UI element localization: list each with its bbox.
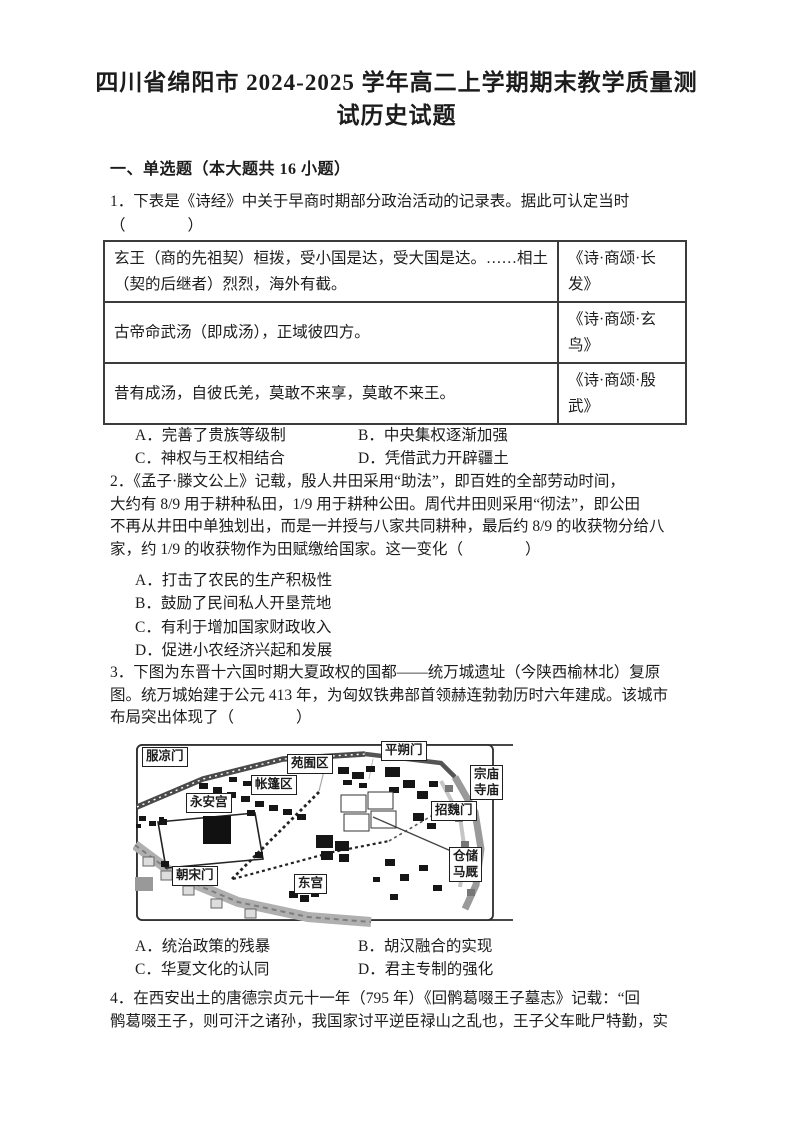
table-cell-source: 《诗·商颂·玄鸟》: [558, 302, 686, 363]
figure-label-tent-area: 帐篷区: [251, 775, 297, 795]
question-1-stem-line: （ ）: [110, 214, 685, 238]
question-2-stem-line: 2．《孟子·滕文公上》记载，殷人井田采用“助法”，即百姓的全部劳动时间，: [110, 471, 685, 494]
figure-label-east-gate: 招魏门: [431, 801, 477, 821]
question-3-stem-line: 布局突出体现了（ ）: [110, 707, 685, 730]
figure-label-storage-line-1: 仓储: [453, 849, 478, 865]
figure-label-temple-line-2: 寺庙: [474, 783, 499, 799]
page-title-line-2: 试历史试题: [0, 99, 793, 132]
figure-label-temple-line-1: 宗庙: [474, 767, 499, 783]
q1-option-d: D．凭借武力开辟疆土: [358, 448, 509, 470]
question-4-stem-line: 鹘葛啜王子，则可汗之诸孙，我国家讨平逆臣禄山之乱也，王子父车毗尸特勤，实: [110, 1011, 685, 1034]
page-title: 四川省绵阳市 2024-2025 学年高二上学期期末教学质量测 试历史试题: [0, 66, 793, 132]
figure-label-temple: 宗庙 寺庙: [470, 765, 503, 800]
q2-option-c: C．有利于增加国家财政收入: [135, 617, 331, 639]
table-cell-source: 《诗·商颂·殷武》: [558, 363, 686, 424]
question-1-stem: 1．下表是《诗经》中关于早商时期部分政治活动的记录表。据此可认定当时 （ ）: [110, 190, 685, 237]
question-2-stem-line: 家，约 1/9 的收获物作为田赋缴给国家。这一变化（ ）: [110, 539, 685, 562]
figure-label-storage: 仓储 马厩: [449, 847, 482, 882]
q3-option-d: D．君主专制的强化: [358, 959, 493, 981]
table-cell-content: 昔有成汤，自彼氏羌，莫敢不来享，莫敢不来王。: [104, 363, 558, 424]
question-3-stem-line: 3．下图为东晋十六国时期大夏政权的国都——统万城遗址（今陕西榆林北）复原: [110, 662, 685, 685]
figure-label-north-gate: 平朔门: [381, 741, 427, 761]
page-title-line-1: 四川省绵阳市 2024-2025 学年高二上学期期末教学质量测: [0, 66, 793, 99]
q1-source-table: 玄王（商的先祖契）桓拨，受小国是达，受大国是达。……相土（契的后继者）烈烈，海外…: [103, 240, 687, 425]
section-heading: 一、单选题（本大题共 16 小题）: [110, 155, 351, 179]
q2-option-a: A．打击了农民的生产积极性: [135, 570, 332, 592]
tongwan-city-figure: 服凉门 苑囿区 平朔门 宗庙 寺庙 帐篷区 永安宫 招魏门 仓储 马厩 朝宋门 …: [133, 737, 513, 927]
figure-label-south-gate: 朝宋门: [172, 866, 218, 886]
q1-option-a: A．完善了贵族等级制: [135, 425, 286, 447]
q3-option-c: C．华夏文化的认同: [135, 959, 269, 981]
question-4-stem: 4．在西安出土的唐德宗贞元十一年（795 年）《回鹘葛啜王子墓志》记载：“回 鹘…: [110, 988, 685, 1033]
q1-option-b: B．中央集权逐渐加强: [358, 425, 508, 447]
table-row: 古帝命武汤（即成汤），正域彼四方。 《诗·商颂·玄鸟》: [104, 302, 686, 363]
question-2-stem-line: 不再从井田中单独划出，而是一并授与八家共同耕种，最后约 8/9 的收获物分给八: [110, 516, 685, 539]
table-cell-content: 玄王（商的先祖契）桓拨，受小国是达，受大国是达。……相土（契的后继者）烈烈，海外…: [104, 241, 558, 302]
question-3-stem-line: 图。统万城始建于公元 413 年，为匈奴铁弗部首领赫连勃勃历时六年建成。该城市: [110, 685, 685, 708]
figure-label-storage-line-2: 马厩: [453, 865, 478, 881]
q1-option-c: C．神权与王权相结合: [135, 448, 285, 470]
table-cell-source: 《诗·商颂·长发》: [558, 241, 686, 302]
question-4-stem-line: 4．在西安出土的唐德宗贞元十一年（795 年）《回鹘葛啜王子墓志》记载：“回: [110, 988, 685, 1011]
question-1-stem-line: 1．下表是《诗经》中关于早商时期部分政治活动的记录表。据此可认定当时: [110, 190, 685, 214]
exam-page: 四川省绵阳市 2024-2025 学年高二上学期期末教学质量测 试历史试题 一、…: [0, 0, 793, 1122]
figure-label-garden-area: 苑囿区: [287, 754, 333, 774]
figure-label-west-gate: 服凉门: [142, 747, 188, 767]
table-row: 玄王（商的先祖契）桓拨，受小国是达，受大国是达。……相土（契的后继者）烈烈，海外…: [104, 241, 686, 302]
question-3-stem: 3．下图为东晋十六国时期大夏政权的国都——统万城遗址（今陕西榆林北）复原 图。统…: [110, 662, 685, 730]
figure-label-east-palace: 东宫: [294, 874, 327, 894]
table-cell-content: 古帝命武汤（即成汤），正域彼四方。: [104, 302, 558, 363]
q2-option-d: D．促进小农经济兴起和发展: [135, 640, 332, 662]
table-row: 昔有成汤，自彼氏羌，莫敢不来享，莫敢不来王。 《诗·商颂·殷武》: [104, 363, 686, 424]
question-2-stem: 2．《孟子·滕文公上》记载，殷人井田采用“助法”，即百姓的全部劳动时间， 大约有…: [110, 471, 685, 561]
q2-option-b: B．鼓励了民间私人开垦荒地: [135, 593, 331, 615]
q3-option-a: A．统治政策的残暴: [135, 936, 270, 958]
figure-label-yongan-palace: 永安宫: [186, 793, 232, 813]
q3-option-b: B．胡汉融合的实现: [358, 936, 492, 958]
question-2-stem-line: 大约有 8/9 用于耕种私田，1/9 用于耕种公田。周代井田则采用“彻法”，即公…: [110, 494, 685, 517]
